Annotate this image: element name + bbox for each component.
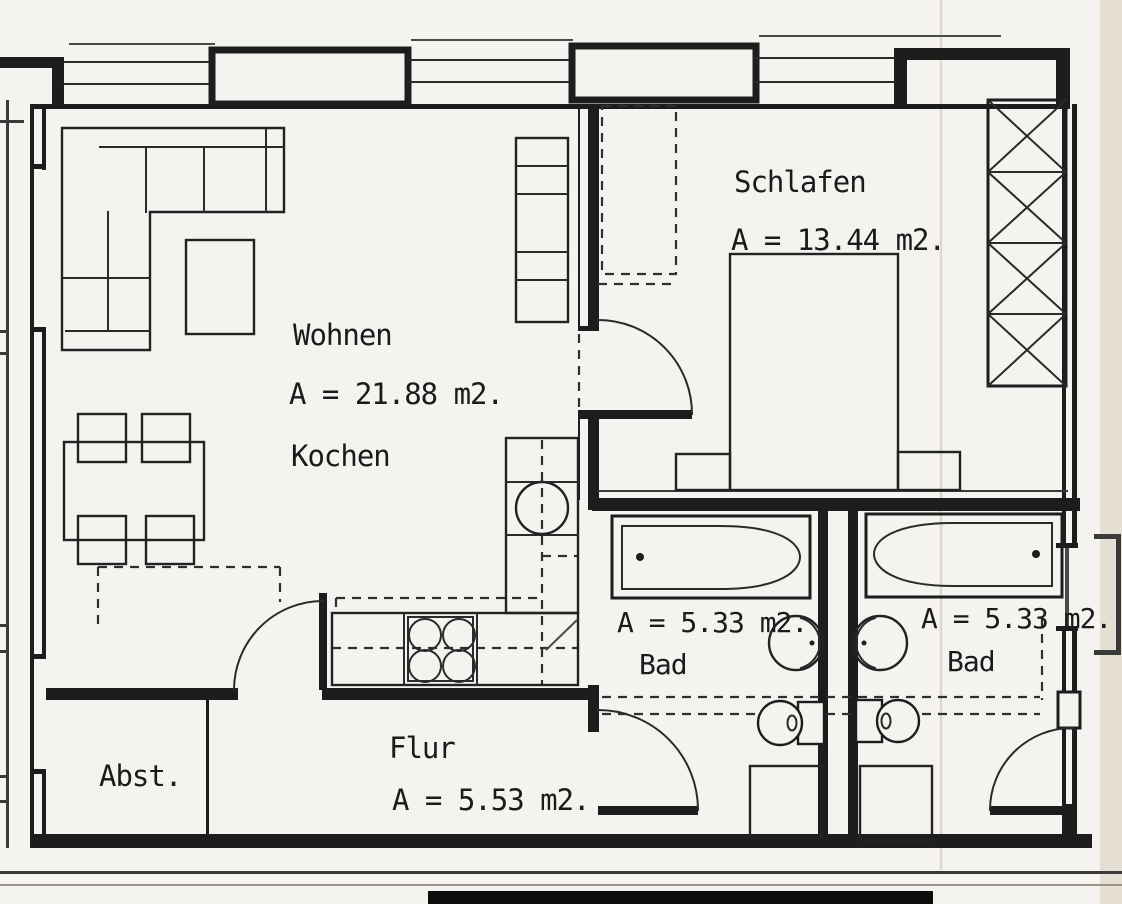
top-wall-inner-face: [30, 104, 1070, 109]
wall-end-tick: [578, 326, 599, 331]
window-living-left: [64, 44, 214, 84]
flur-north-wall-west: [46, 688, 238, 700]
bed: [730, 254, 898, 490]
washer-right: [860, 766, 932, 840]
label-schlafen-area: A = 13.44 m2.: [731, 223, 945, 257]
right-wall-outer-a: [1072, 104, 1077, 548]
bathtub-right: [866, 514, 1062, 597]
left-wall-inner-1: [42, 104, 46, 170]
bedroom-bath-wall: [592, 498, 1080, 511]
chair: [78, 414, 126, 462]
dashed-guides: [98, 106, 1042, 714]
dining-set: [64, 414, 204, 564]
top-wall-pier-right: [894, 55, 907, 108]
left-window-tick-4: [30, 769, 46, 774]
bath-door-pier: [1058, 692, 1080, 728]
washer-left: [750, 766, 822, 838]
left-window-tick-3: [30, 654, 46, 659]
label-flur: Flur: [389, 731, 455, 765]
label-wohnen: Wohnen: [293, 318, 392, 352]
scan-bottom-line-2: [0, 884, 1122, 886]
shelf-unit: [516, 138, 568, 322]
window-bedroom-left: [572, 46, 756, 100]
bedroom-furniture: [676, 100, 1066, 490]
floor-plan-scan: Wohnen A = 21.88 m2. Kochen Schlafen A =…: [0, 0, 1122, 904]
toilet-right: [856, 700, 919, 742]
wardrobe: [988, 100, 1066, 386]
door-living-flur: [234, 593, 327, 690]
floor-plan-drawing: Wohnen A = 21.88 m2. Kochen Schlafen A =…: [0, 0, 1122, 904]
scan-bottom-blob: [428, 891, 933, 904]
living-bedroom-wall-thin: [578, 104, 580, 328]
top-wall-right: [894, 48, 1070, 60]
left-wall-inner-2: [42, 330, 46, 658]
corner-cabinet-diagonal: [546, 620, 577, 650]
window-living-center: [212, 50, 408, 104]
tub-drain: [636, 553, 644, 561]
bedroom-dashed-closet: [602, 106, 676, 274]
label-wohnen-area: A = 21.88 m2.: [289, 377, 503, 411]
interior-walls: [46, 104, 1080, 842]
left-window-tick-2: [30, 327, 46, 332]
chair: [142, 414, 190, 462]
dining-table: [64, 442, 204, 540]
window-living-right: [408, 40, 574, 82]
scan-edge-shade: [1100, 0, 1122, 904]
abst-partition: [206, 700, 209, 834]
sink-right: [853, 616, 907, 670]
flur-north-wall-east: [322, 688, 598, 700]
top-windows: [64, 36, 1000, 104]
scan-bottom-line: [0, 871, 1122, 874]
door-flur-bathhall: [598, 710, 698, 815]
toilet-left: [758, 701, 824, 745]
label-kochen: Kochen: [291, 439, 390, 473]
door-bath-right: [990, 728, 1074, 815]
label-bad-right-area: A = 5.33 m2.: [921, 602, 1111, 635]
label-flur-area: A = 5.53 m2.: [392, 783, 590, 817]
neighbor-unit-lines: [0, 100, 24, 848]
top-wall-pier: [52, 57, 64, 108]
label-bad-left-area: A = 5.33 m2.: [617, 606, 807, 639]
label-bad-right: Bad: [947, 645, 995, 678]
label-bad-left: Bad: [639, 648, 687, 681]
nightstand-right: [898, 452, 960, 490]
living-bedroom-wall: [588, 104, 599, 330]
right-window-tick-1: [1056, 543, 1078, 548]
exterior-walls: [0, 48, 1121, 848]
left-window-tick-1: [30, 164, 46, 169]
tub-drain: [1032, 550, 1040, 558]
nightstand-left: [676, 454, 730, 490]
right-window-sill-3: [1116, 534, 1121, 655]
label-abst: Abst.: [99, 759, 181, 793]
stove: [408, 617, 475, 682]
door-bedroom: [578, 320, 692, 419]
side-table: [186, 240, 254, 334]
living-bedroom-wall-2: [588, 412, 599, 510]
left-wall-outer: [30, 104, 34, 848]
bathtub-left: [612, 516, 810, 598]
flur-bath-stub: [588, 685, 599, 732]
bath-divider-wall-right: [848, 511, 858, 842]
label-schlafen: Schlafen: [734, 165, 866, 199]
